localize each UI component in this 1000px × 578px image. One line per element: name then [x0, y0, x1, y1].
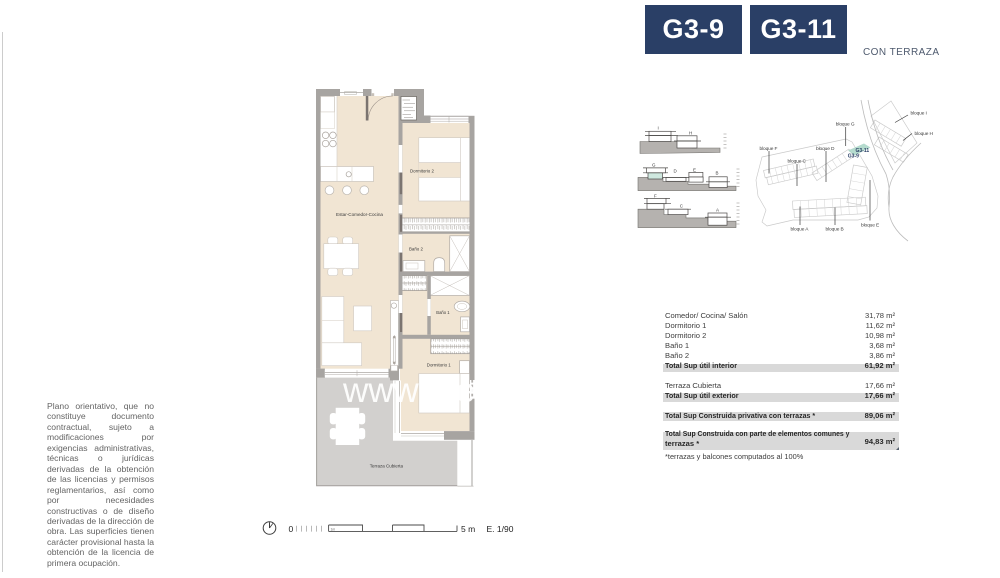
svg-text:1m: 1m	[331, 527, 336, 531]
svg-text:H: H	[689, 130, 692, 135]
svg-text:I: I	[658, 126, 659, 131]
svg-text:bloque A: bloque A	[791, 227, 810, 233]
svg-text:Terraza Cubierta: Terraza Cubierta	[370, 463, 404, 468]
svg-text:bloque I: bloque I	[911, 111, 927, 117]
svg-text:bloque F: bloque F	[760, 146, 778, 152]
svg-text:0: 0	[289, 524, 294, 534]
svg-text:G: G	[652, 163, 656, 168]
svg-text:E. 1/90: E. 1/90	[487, 524, 514, 534]
svg-text:Dormitorio 2: Dormitorio 2	[410, 168, 434, 173]
svg-text:C: C	[680, 204, 684, 209]
svg-text:bloque E: bloque E	[861, 223, 879, 229]
svg-text:G3-9: G3-9	[848, 154, 859, 160]
svg-text:bloque G: bloque G	[836, 122, 855, 128]
svg-text:D: D	[674, 169, 678, 174]
svg-text:Baño 2: Baño 2	[409, 247, 423, 252]
svg-text:5 m: 5 m	[461, 524, 475, 534]
svg-text:Baño 1: Baño 1	[436, 310, 450, 315]
svg-text:E: E	[693, 168, 696, 173]
svg-text:Dormitorio 1: Dormitorio 1	[427, 363, 451, 368]
svg-text:A: A	[716, 208, 719, 213]
svg-text:bloque C: bloque C	[788, 159, 807, 165]
svg-text:F: F	[654, 193, 657, 198]
svg-text:bloque H: bloque H	[915, 131, 934, 137]
svg-text:B: B	[716, 171, 719, 176]
svg-text:bloque D: bloque D	[816, 146, 835, 152]
svg-text:Estar-Comedor-Cocina: Estar-Comedor-Cocina	[336, 212, 383, 217]
svg-text:bloque B: bloque B	[826, 227, 844, 233]
